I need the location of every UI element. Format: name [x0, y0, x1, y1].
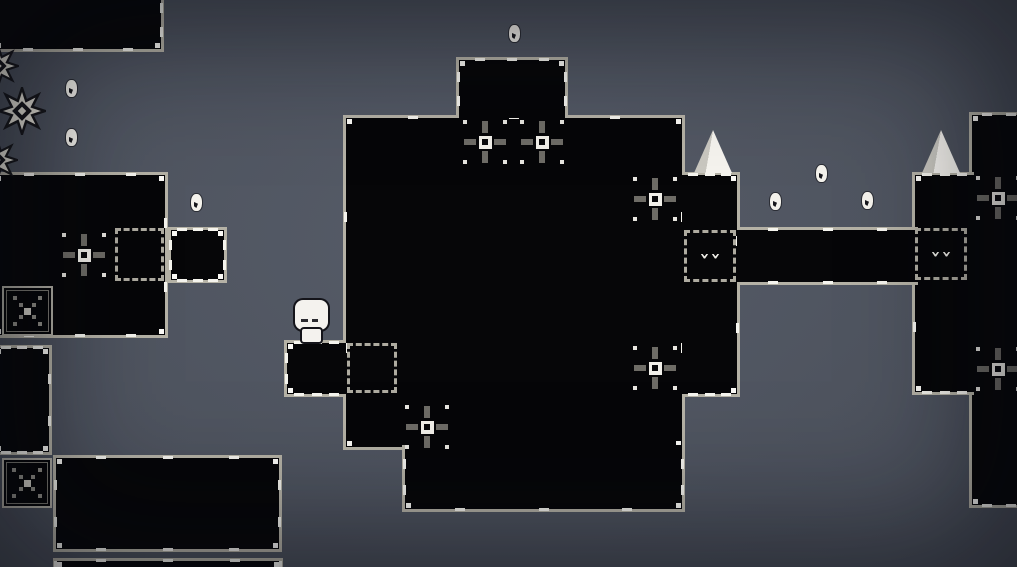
platform-bridge: [737, 227, 918, 285]
border-tick: [957, 391, 967, 394]
border-tick: [164, 218, 167, 228]
border-tick: [940, 391, 950, 394]
target-crosshair-icon: [463, 120, 507, 164]
border-tick: [208, 228, 218, 231]
border-tick: [126, 334, 136, 337]
border-tick: [177, 228, 187, 231]
border-tick: [73, 48, 83, 51]
border-tick: [455, 508, 465, 511]
border-tick: [823, 228, 833, 231]
border-tick: [768, 228, 778, 231]
saw-gear-icon: [0, 87, 46, 135]
border-tick: [279, 561, 282, 567]
border-tick: [922, 391, 932, 394]
platform-bottom-strip: [53, 558, 283, 567]
corner-mark: [57, 562, 62, 567]
corner-mark: [57, 459, 62, 464]
border-tick: [705, 173, 715, 176]
border-tick: [823, 281, 833, 284]
corner-mark: [676, 119, 681, 124]
border-tick: [564, 96, 567, 106]
platform-bottom-left: [53, 455, 282, 552]
egg-collectible: [66, 129, 77, 146]
corner-mark: [273, 459, 278, 464]
platform-central-top: [456, 57, 568, 118]
egg-collectible: [816, 165, 827, 182]
player-character: [295, 300, 329, 343]
corner-mark: [57, 543, 62, 548]
spike-hazard: [694, 130, 732, 173]
saw-gear-icon: [0, 139, 18, 181]
border-tick: [539, 58, 549, 61]
border-tick: [229, 548, 239, 551]
border-tick: [768, 281, 778, 284]
border-tick: [230, 559, 240, 562]
platform-right-big: [969, 112, 1017, 508]
border-tick: [913, 322, 916, 332]
target-crosshair-icon: [633, 177, 677, 221]
border-tick: [278, 517, 281, 527]
border-tick: [564, 72, 567, 82]
border-tick: [177, 279, 187, 282]
border-tick: [403, 459, 406, 469]
border-tick: [285, 374, 288, 384]
border-tick: [507, 58, 517, 61]
target-crosshair-icon: [976, 347, 1017, 391]
border-tick: [169, 260, 172, 270]
corner-mark: [0, 446, 1, 451]
border-tick: [193, 228, 203, 231]
game-viewport[interactable]: [0, 0, 1017, 567]
border-tick: [329, 341, 339, 344]
border-tick: [457, 72, 460, 82]
border-tick: [169, 240, 172, 250]
border-tick: [223, 260, 226, 270]
border-tick: [163, 559, 173, 562]
closed-eye-mark: [932, 252, 940, 257]
platform-central-right-extension: [682, 172, 740, 397]
corner-mark: [916, 386, 921, 391]
border-tick: [940, 173, 950, 176]
border-tick: [1, 451, 11, 454]
border-tick: [24, 173, 34, 176]
corner-mark: [288, 388, 293, 393]
border-tick: [622, 508, 632, 511]
player-body: [302, 329, 321, 342]
border-tick: [681, 459, 684, 469]
x-box-upper: [2, 286, 53, 336]
corner-mark: [676, 503, 681, 508]
egg-collectible: [770, 193, 781, 210]
egg-collectible: [509, 25, 520, 42]
target-crosshair-icon: [520, 120, 564, 164]
border-tick: [208, 279, 218, 282]
dashed-zone-left: [115, 228, 164, 281]
corner-mark: [916, 176, 921, 181]
border-tick: [1, 346, 11, 349]
corner-mark: [218, 231, 223, 236]
corner-mark: [731, 388, 736, 393]
platform-character-ledge: [284, 340, 346, 397]
target-crosshair-icon: [976, 176, 1017, 220]
border-tick: [688, 393, 698, 396]
border-tick: [33, 451, 43, 454]
border-tick: [229, 456, 239, 459]
border-tick: [610, 116, 620, 119]
corner-mark: [731, 176, 736, 181]
border-tick: [982, 504, 992, 507]
border-tick: [48, 374, 51, 384]
border-tick: [294, 393, 304, 396]
border-tick: [312, 393, 322, 396]
platform-central-main: [343, 115, 685, 450]
corner-mark: [274, 562, 279, 567]
platform-top-left: [0, 0, 164, 52]
corner-mark: [43, 349, 48, 354]
corner-mark: [172, 231, 177, 236]
border-tick: [96, 548, 106, 551]
corner-mark: [155, 43, 160, 48]
border-tick: [96, 456, 106, 459]
border-tick: [408, 116, 418, 119]
platform-left-vertical: [0, 345, 52, 455]
border-tick: [160, 27, 163, 37]
corner-mark: [288, 344, 293, 349]
border-tick: [736, 323, 739, 333]
player-eye: [301, 319, 308, 322]
corner-mark: [460, 61, 465, 66]
border-tick: [123, 48, 133, 51]
corner-mark: [159, 176, 164, 181]
target-crosshair-icon: [62, 233, 106, 277]
border-tick: [344, 212, 347, 222]
corner-mark: [218, 274, 223, 279]
border-tick: [75, 334, 85, 337]
platform-left-extension: [168, 227, 227, 283]
border-tick: [223, 240, 226, 250]
border-tick: [33, 346, 43, 349]
closed-eye-mark: [712, 254, 720, 259]
corner-mark: [172, 274, 177, 279]
border-tick: [877, 281, 887, 284]
border-tick: [163, 548, 173, 551]
corner-mark: [0, 349, 1, 354]
border-tick: [164, 282, 167, 292]
border-tick: [48, 416, 51, 426]
border-tick: [193, 279, 203, 282]
player-head: [295, 300, 328, 330]
border-tick: [1006, 504, 1016, 507]
spike-hazard: [922, 130, 960, 173]
player-eye: [312, 319, 318, 322]
saw-gear-icon: [0, 45, 19, 87]
border-tick: [54, 480, 57, 490]
border-tick: [329, 393, 339, 396]
border-tick: [922, 173, 932, 176]
border-tick: [475, 58, 485, 61]
corner-mark: [0, 329, 1, 334]
border-tick: [75, 173, 85, 176]
closed-eye-mark: [943, 252, 951, 257]
border-tick: [721, 393, 731, 396]
closed-eye-mark: [701, 254, 709, 259]
corner-mark: [406, 503, 411, 508]
border-tick: [982, 113, 992, 116]
border-tick: [160, 3, 163, 13]
egg-collectible: [862, 192, 873, 209]
egg-collectible: [191, 194, 202, 211]
corner-mark: [273, 543, 278, 548]
corner-mark: [559, 61, 564, 66]
dashed-zone-central-right: [684, 230, 736, 282]
target-crosshair-icon: [405, 405, 449, 449]
corner-mark: [347, 119, 352, 124]
border-tick: [403, 485, 406, 495]
corner-mark: [43, 446, 48, 451]
border-tick: [681, 485, 684, 495]
dashed-zone-character: [347, 343, 397, 393]
border-tick: [539, 508, 549, 511]
corner-mark: [347, 441, 352, 446]
corner-mark: [973, 499, 978, 504]
platform-central-lower: [402, 445, 685, 512]
border-tick: [96, 559, 106, 562]
target-crosshair-icon: [633, 346, 677, 390]
border-tick: [1006, 113, 1016, 116]
corner-mark: [159, 329, 164, 334]
border-tick: [957, 173, 967, 176]
border-tick: [54, 517, 57, 527]
border-tick: [688, 173, 698, 176]
border-tick: [877, 228, 887, 231]
border-tick: [17, 451, 27, 454]
border-tick: [23, 48, 33, 51]
border-tick: [278, 480, 281, 490]
border-tick: [126, 173, 136, 176]
border-tick: [285, 353, 288, 363]
corner-mark: [973, 116, 978, 121]
border-tick: [721, 173, 731, 176]
x-box-lower: [2, 458, 52, 508]
border-tick: [457, 96, 460, 106]
platform-right-extension: [912, 172, 974, 395]
border-tick: [705, 393, 715, 396]
border-tick: [17, 346, 27, 349]
egg-collectible: [66, 80, 77, 97]
border-tick: [163, 456, 173, 459]
dashed-zone-right: [915, 228, 967, 280]
